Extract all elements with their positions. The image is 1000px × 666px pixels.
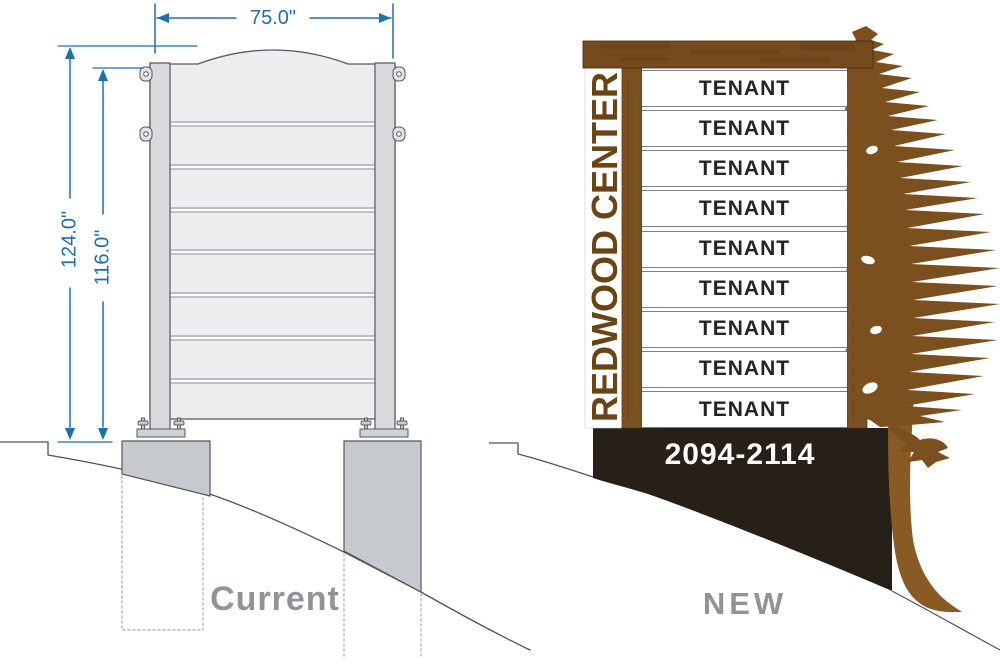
base-plates xyxy=(137,429,408,437)
tenant-label: TENANT xyxy=(699,398,790,422)
current-sign-drawing xyxy=(0,4,530,658)
tenant-label: TENANT xyxy=(699,117,790,141)
sign-face xyxy=(150,50,395,419)
wood-cap xyxy=(583,41,873,68)
tenant-panel: TENANT xyxy=(642,70,847,107)
sign-comparison-diagram: 75.0" 124.0" 116.0" Current NEW REDWOOD … xyxy=(0,0,1000,666)
new-caption: NEW xyxy=(660,586,830,622)
tenant-panel: TENANT xyxy=(642,190,847,227)
diagram-canvas xyxy=(0,0,1000,666)
tenant-panel: TENANT xyxy=(642,391,847,428)
dim-height-overall-label: 124.0" xyxy=(59,195,82,285)
tenant-panel: TENANT xyxy=(642,351,847,388)
address-range-label: 2094-2114 xyxy=(625,438,855,472)
post-right xyxy=(375,63,395,432)
building-name-label: REDWOOD CENTER xyxy=(584,72,626,422)
tenant-label: TENANT xyxy=(699,77,790,101)
tenant-panel: TENANT xyxy=(642,231,847,268)
footing-left xyxy=(122,441,210,496)
tenant-panel: TENANT xyxy=(642,271,847,308)
tenant-label: TENANT xyxy=(699,157,790,181)
ground-line-far-right xyxy=(892,591,1000,650)
tenant-panel: TENANT xyxy=(642,311,847,348)
tenant-label: TENANT xyxy=(699,317,790,341)
building-name-strip: REDWOOD CENTER xyxy=(581,66,629,428)
dim-height-structure-label: 116.0" xyxy=(92,213,115,303)
tenant-panel: TENANT xyxy=(642,110,847,147)
tenant-label: TENANT xyxy=(699,197,790,221)
current-caption: Current xyxy=(180,580,370,619)
tenant-label: TENANT xyxy=(699,277,790,301)
ground-line-right xyxy=(489,443,593,477)
post-left xyxy=(150,63,170,432)
tenant-label: TENANT xyxy=(699,237,790,261)
tenant-label: TENANT xyxy=(699,357,790,381)
footing-right xyxy=(344,441,421,592)
tree-silhouette xyxy=(845,26,1000,427)
tenant-panel-list: TENANT TENANT TENANT TENANT TENANT TENAN… xyxy=(642,70,847,428)
dim-width-label: 75.0" xyxy=(238,7,308,30)
tenant-panel: TENANT xyxy=(642,150,847,187)
